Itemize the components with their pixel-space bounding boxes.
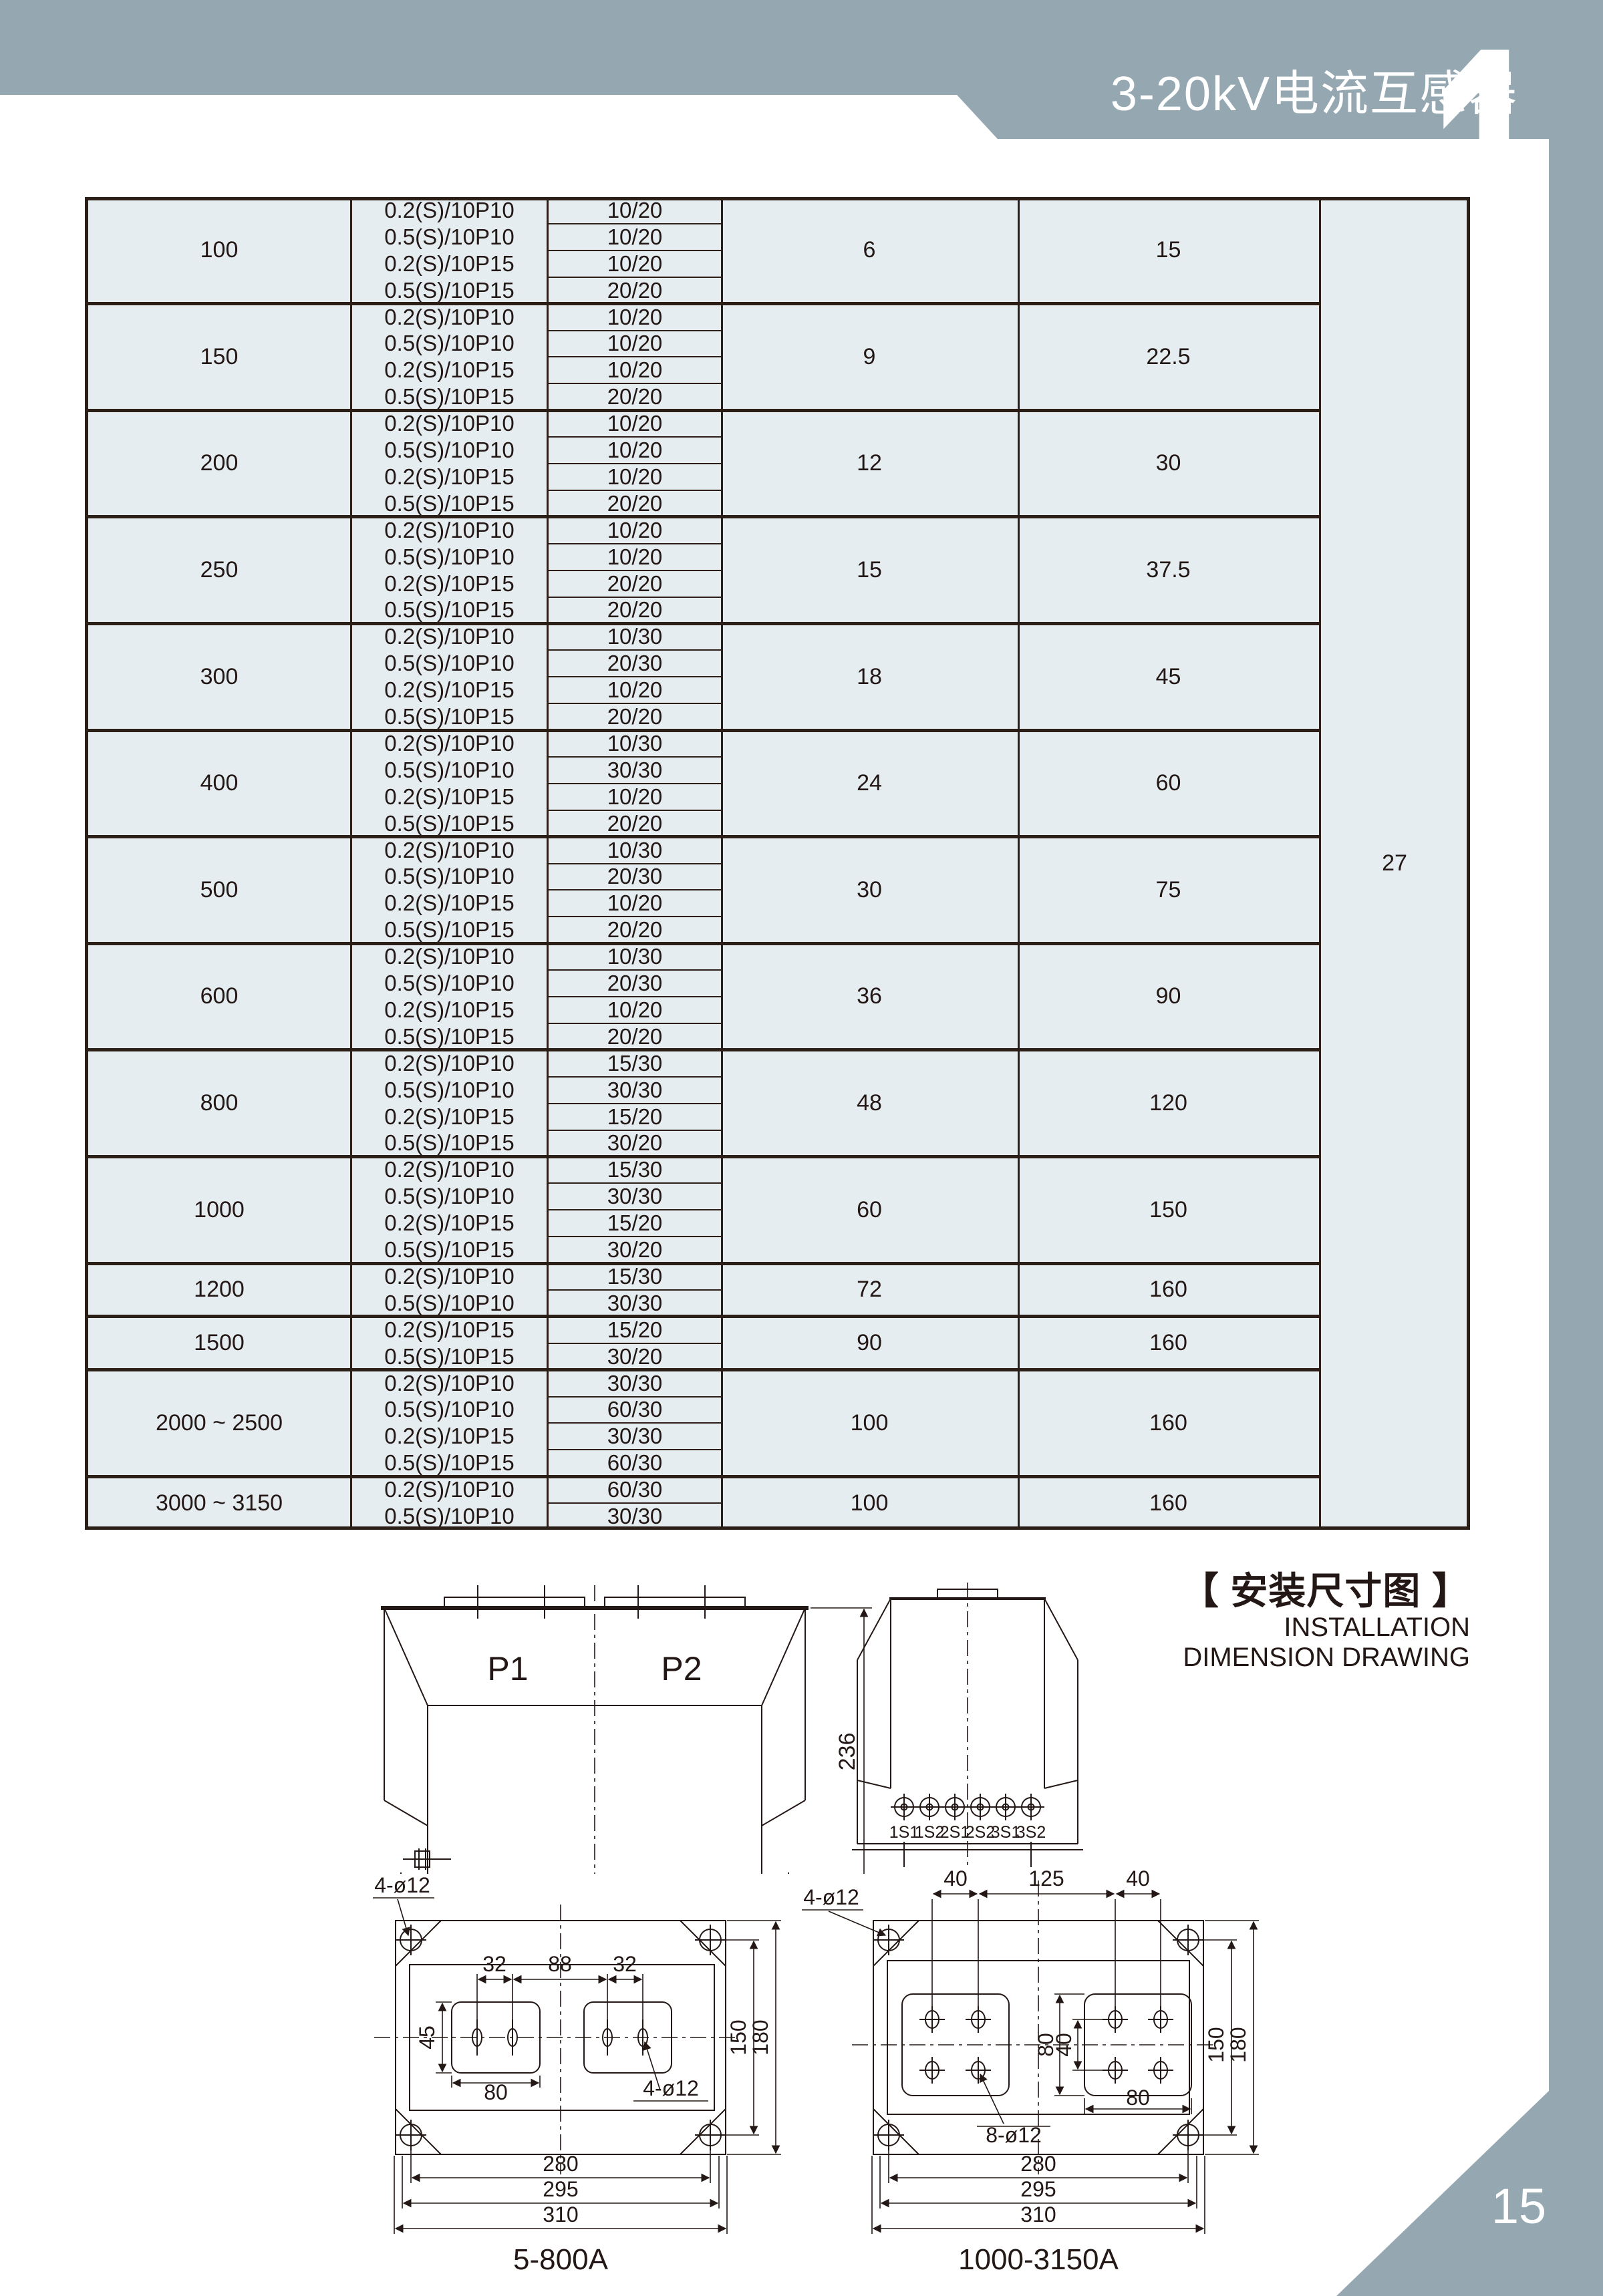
cell-current: 1500 (88, 1317, 350, 1370)
class-label: 0.5(S)/10P10 (352, 757, 547, 784)
cell-class-group: 0.2(S)/10P100.5(S)/10P100.2(S)/10P150.5(… (352, 410, 547, 517)
drawing-caption: 1000-3150A (958, 2243, 1119, 2276)
cell-value-d: 48 (721, 1050, 1018, 1157)
cell-value-d: 6 (721, 197, 1018, 304)
cell-ratio: 20/30 (549, 970, 721, 997)
cell-ratio: 10/20 (549, 197, 721, 224)
class-label: 0.5(S)/10P15 (352, 1130, 547, 1157)
cell-ratio: 30/30 (549, 1370, 721, 1397)
dim-label: 40 (1126, 1866, 1150, 1891)
cell-value-e: 22.5 (1018, 304, 1319, 411)
class-label: 0.2(S)/10P10 (352, 1370, 547, 1397)
class-label: 0.2(S)/10P10 (352, 943, 547, 970)
cell-class-group: 0.2(S)/10P100.5(S)/10P100.2(S)/10P150.5(… (352, 1370, 547, 1477)
class-label: 0.2(S)/10P15 (352, 677, 547, 703)
class-label: 0.2(S)/10P10 (352, 1156, 547, 1183)
table-grid-line (85, 197, 1470, 200)
class-label: 0.2(S)/10P15 (352, 357, 547, 383)
cell-value-e: 45 (1018, 623, 1319, 730)
class-label: 0.5(S)/10P10 (352, 864, 547, 890)
cell-ratio: 20/20 (549, 277, 721, 304)
cell-ratio: 20/20 (549, 383, 721, 410)
cell-value-d: 30 (721, 837, 1018, 944)
dim-label: 88 (548, 1952, 572, 1976)
cell-value-d: 24 (721, 730, 1018, 837)
cell-class-group: 0.2(S)/10P100.5(S)/10P100.2(S)/10P150.5(… (352, 517, 547, 624)
class-label: 0.5(S)/10P10 (352, 1290, 547, 1317)
table-grid-line (350, 197, 352, 1530)
class-label: 0.5(S)/10P15 (352, 597, 547, 624)
dim-label: 32 (482, 1952, 506, 1976)
class-label: 0.2(S)/10P10 (352, 1050, 547, 1077)
cell-ratio: 10/20 (549, 784, 721, 810)
cell-ratio: 10/30 (549, 837, 721, 864)
cell-class-group: 0.2(S)/10P100.5(S)/10P100.2(S)/10P150.5(… (352, 1156, 547, 1263)
front-view-p2-label: P2 (661, 1650, 702, 1687)
cell-class-group: 0.2(S)/10P100.5(S)/10P100.2(S)/10P150.5(… (352, 943, 547, 1050)
cell-ratio: 20/20 (549, 570, 721, 597)
class-label: 0.5(S)/10P15 (352, 1450, 547, 1476)
class-label: 0.5(S)/10P15 (352, 1237, 547, 1263)
cell-ratio: 10/20 (549, 304, 721, 331)
cell-value-e: 60 (1018, 730, 1319, 837)
cell-value-d: 72 (721, 1263, 1018, 1317)
class-label: 0.5(S)/10P15 (352, 490, 547, 517)
cell-ratio: 15/30 (549, 1156, 721, 1183)
cell-ratio: 15/20 (549, 1210, 721, 1237)
cell-value-d: 9 (721, 304, 1018, 411)
cell-ratio: 15/20 (549, 1104, 721, 1130)
cell-current: 500 (88, 837, 350, 944)
cell-ratio: 10/20 (549, 251, 721, 277)
cell-current: 2000 ~ 2500 (88, 1370, 350, 1477)
cell-ratio: 20/20 (549, 597, 721, 624)
cell-value-e: 37.5 (1018, 517, 1319, 624)
cell-value-e: 160 (1018, 1263, 1319, 1317)
right-sidebar-strip (1549, 0, 1603, 2296)
cell-ratio: 20/20 (549, 703, 721, 730)
terminal-label: 3S2 (1016, 1823, 1046, 1842)
cell-ratio: 30/20 (549, 1237, 721, 1263)
cell-current: 200 (88, 410, 350, 517)
dim-label: 180 (748, 2019, 772, 2055)
dim-label: 4-ø12 (643, 2076, 699, 2100)
front-view-p1-label: P1 (487, 1650, 528, 1687)
cell-current: 1200 (88, 1263, 350, 1317)
cell-ratio: 30/30 (549, 1423, 721, 1450)
cell-value-d: 18 (721, 623, 1018, 730)
cell-ratio: 20/20 (549, 917, 721, 943)
class-label: 0.5(S)/10P10 (352, 650, 547, 677)
class-label: 0.2(S)/10P15 (352, 251, 547, 277)
class-label: 0.5(S)/10P10 (352, 224, 547, 251)
cell-ratio: 10/30 (549, 623, 721, 650)
cell-ratio: 10/20 (549, 890, 721, 917)
cell-ratio: 10/20 (549, 331, 721, 357)
cell-value-e: 160 (1018, 1317, 1319, 1370)
catalog-page: 1 3-20kV电流互感器 15 1000.2(S)/10P100.5(S)/1… (0, 0, 1603, 2296)
side-view-drawing: 1S1 1S2 2S1 2S2 3S1 3S2 (825, 1580, 1113, 1874)
cell-value-d: 100 (721, 1476, 1018, 1530)
class-label: 0.2(S)/10P15 (352, 570, 547, 597)
class-label: 0.2(S)/10P15 (352, 1423, 547, 1450)
cell-current: 400 (88, 730, 350, 837)
cell-ratio: 10/20 (549, 997, 721, 1023)
cell-value-e: 150 (1018, 1156, 1319, 1263)
cell-ratio: 10/30 (549, 943, 721, 970)
cell-ratio: 60/30 (549, 1450, 721, 1476)
cell-class-group: 0.2(S)/10P100.5(S)/10P10 (352, 1263, 547, 1317)
dim-label: 32 (613, 1952, 637, 1976)
cell-current: 3000 ~ 3150 (88, 1476, 350, 1530)
table-grid-line (1018, 197, 1020, 1530)
cell-ratio: 20/20 (549, 490, 721, 517)
dim-label: 280 (543, 2152, 578, 2176)
cell-ratio: 30/30 (549, 1077, 721, 1104)
class-label: 0.5(S)/10P10 (352, 1397, 547, 1424)
class-label: 0.2(S)/10P15 (352, 464, 547, 490)
cell-ratio: 15/20 (549, 1317, 721, 1343)
dim-label: 310 (543, 2202, 578, 2227)
cell-ratio: 10/20 (549, 224, 721, 251)
cell-class-group: 0.2(S)/10P100.5(S)/10P100.2(S)/10P150.5(… (352, 304, 547, 411)
cell-value-d: 15 (721, 517, 1018, 624)
cell-value-d: 100 (721, 1370, 1018, 1477)
dim-label: 280 (1020, 2152, 1056, 2176)
cell-ratio: 30/20 (549, 1130, 721, 1157)
cell-ratio: 10/20 (549, 464, 721, 490)
cell-current: 1000 (88, 1156, 350, 1263)
dim-label: 4-ø12 (374, 1873, 430, 1897)
dim-label: 4-ø12 (803, 1885, 859, 1909)
class-label: 0.5(S)/10P10 (352, 1183, 547, 1210)
class-label: 0.5(S)/10P15 (352, 1023, 547, 1050)
cell-current: 300 (88, 623, 350, 730)
cell-ratio: 10/20 (549, 517, 721, 544)
cell-value-e: 120 (1018, 1050, 1319, 1157)
dim-label: 40 (943, 1866, 968, 1891)
cell-ratio: 30/30 (549, 1503, 721, 1530)
cell-class-group: 0.2(S)/10P150.5(S)/10P15 (352, 1317, 547, 1370)
dim-label: 150 (726, 2019, 750, 2055)
cell-ratio: 30/30 (549, 1290, 721, 1317)
cell-ratio: 20/20 (549, 1023, 721, 1050)
cell-current: 150 (88, 304, 350, 411)
page-title: 3-20kV电流互感器 (1111, 70, 1518, 118)
cell-current: 250 (88, 517, 350, 624)
cell-class-group: 0.2(S)/10P100.5(S)/10P100.2(S)/10P150.5(… (352, 197, 547, 304)
cell-ratio: 15/30 (549, 1263, 721, 1290)
dim-label: 80 (484, 2080, 508, 2104)
front-view-drawing: P1 P2 236 (364, 1580, 892, 1874)
table-grid-line (85, 197, 88, 1530)
cell-value-e: 90 (1018, 943, 1319, 1050)
dim-label: 295 (543, 2177, 578, 2201)
drawing-caption: 5-800A (513, 2243, 609, 2276)
class-label: 0.5(S)/10P10 (352, 544, 547, 570)
page-number: 15 (1482, 2182, 1556, 2231)
cell-class-group: 0.2(S)/10P100.5(S)/10P100.2(S)/10P150.5(… (352, 730, 547, 837)
class-label: 0.2(S)/10P10 (352, 623, 547, 650)
dim-label: 310 (1020, 2202, 1056, 2227)
cell-note-span: 27 (1319, 197, 1470, 1530)
cell-ratio: 10/20 (549, 357, 721, 383)
cell-value-d: 60 (721, 1156, 1018, 1263)
class-label: 0.5(S)/10P15 (352, 277, 547, 304)
cell-ratio: 60/30 (549, 1476, 721, 1503)
cell-ratio: 10/20 (549, 677, 721, 703)
dim-label: 80 (1126, 2086, 1150, 2110)
class-label: 0.2(S)/10P15 (352, 784, 547, 810)
cell-value-d: 90 (721, 1317, 1018, 1370)
cell-current: 100 (88, 197, 350, 304)
spec-table: 1000.2(S)/10P100.5(S)/10P100.2(S)/10P150… (85, 197, 1470, 1530)
cell-value-d: 36 (721, 943, 1018, 1050)
class-label: 0.2(S)/10P10 (352, 1476, 547, 1503)
cell-ratio: 10/30 (549, 730, 721, 757)
class-label: 0.2(S)/10P10 (352, 410, 547, 437)
dim-label: 40 (1052, 2033, 1076, 2057)
class-label: 0.2(S)/10P15 (352, 1317, 547, 1343)
table-grid-line (1467, 197, 1470, 1530)
class-label: 0.2(S)/10P10 (352, 730, 547, 757)
table-grid-line (721, 197, 723, 1530)
cell-ratio: 30/30 (549, 757, 721, 784)
class-label: 0.2(S)/10P10 (352, 1263, 547, 1290)
table-grid-line (1319, 197, 1321, 1530)
cell-value-e: 30 (1018, 410, 1319, 517)
class-label: 0.2(S)/10P15 (352, 1104, 547, 1130)
cell-class-group: 0.2(S)/10P100.5(S)/10P10 (352, 1476, 547, 1530)
top-view-1000-3150A-drawing: 4-ø12 40 125 40 80 40 8-ø12 80 150 180 2… (788, 1860, 1356, 2295)
table-grid-line (547, 197, 549, 1530)
class-label: 0.5(S)/10P10 (352, 331, 547, 357)
class-label: 0.5(S)/10P10 (352, 437, 547, 464)
cell-ratio: 10/20 (549, 437, 721, 464)
table-grid-line (85, 1526, 1470, 1530)
cell-ratio: 60/30 (549, 1397, 721, 1424)
cell-class-group: 0.2(S)/10P100.5(S)/10P100.2(S)/10P150.5(… (352, 1050, 547, 1157)
class-label: 0.5(S)/10P15 (352, 383, 547, 410)
cell-value-e: 15 (1018, 197, 1319, 304)
cell-current: 800 (88, 1050, 350, 1157)
class-label: 0.5(S)/10P15 (352, 810, 547, 837)
dim-label: 8-ø12 (986, 2123, 1042, 2147)
cell-value-e: 160 (1018, 1476, 1319, 1530)
cell-current: 600 (88, 943, 350, 1050)
class-label: 0.5(S)/10P10 (352, 1503, 547, 1530)
class-label: 0.5(S)/10P15 (352, 703, 547, 730)
cell-ratio: 15/30 (549, 1050, 721, 1077)
cell-ratio: 20/30 (549, 864, 721, 890)
cell-ratio: 20/20 (549, 810, 721, 837)
cell-ratio: 10/20 (549, 544, 721, 570)
class-label: 0.5(S)/10P10 (352, 970, 547, 997)
class-label: 0.2(S)/10P15 (352, 997, 547, 1023)
class-label: 0.2(S)/10P15 (352, 890, 547, 917)
class-label: 0.2(S)/10P10 (352, 304, 547, 331)
cell-ratio: 30/30 (549, 1183, 721, 1210)
cell-value-e: 160 (1018, 1370, 1319, 1477)
cell-ratio: 10/20 (549, 410, 721, 437)
cell-ratio: 20/30 (549, 650, 721, 677)
bottom-corner-shape (1336, 2091, 1603, 2296)
dim-label: 295 (1020, 2177, 1056, 2201)
cell-class-group: 0.2(S)/10P100.5(S)/10P100.2(S)/10P150.5(… (352, 623, 547, 730)
top-view-5-800A-drawing: 4-ø12 32 88 32 45 80 4-ø12 150 180 280 2… (361, 1860, 815, 2295)
cell-value-e: 75 (1018, 837, 1319, 944)
cell-value-d: 12 (721, 410, 1018, 517)
dim-label: 45 (415, 2025, 439, 2049)
class-label: 0.5(S)/10P15 (352, 917, 547, 943)
class-label: 0.2(S)/10P15 (352, 1210, 547, 1237)
class-label: 0.5(S)/10P15 (352, 1343, 547, 1370)
class-label: 0.2(S)/10P10 (352, 197, 547, 224)
dim-label: 180 (1226, 2027, 1250, 2062)
class-label: 0.5(S)/10P10 (352, 1077, 547, 1104)
class-label: 0.2(S)/10P10 (352, 517, 547, 544)
class-label: 0.2(S)/10P10 (352, 837, 547, 864)
dim-label: 125 (1028, 1866, 1064, 1891)
dim-label: 150 (1204, 2027, 1228, 2062)
cell-ratio: 30/20 (549, 1343, 721, 1370)
cell-class-group: 0.2(S)/10P100.5(S)/10P100.2(S)/10P150.5(… (352, 837, 547, 944)
